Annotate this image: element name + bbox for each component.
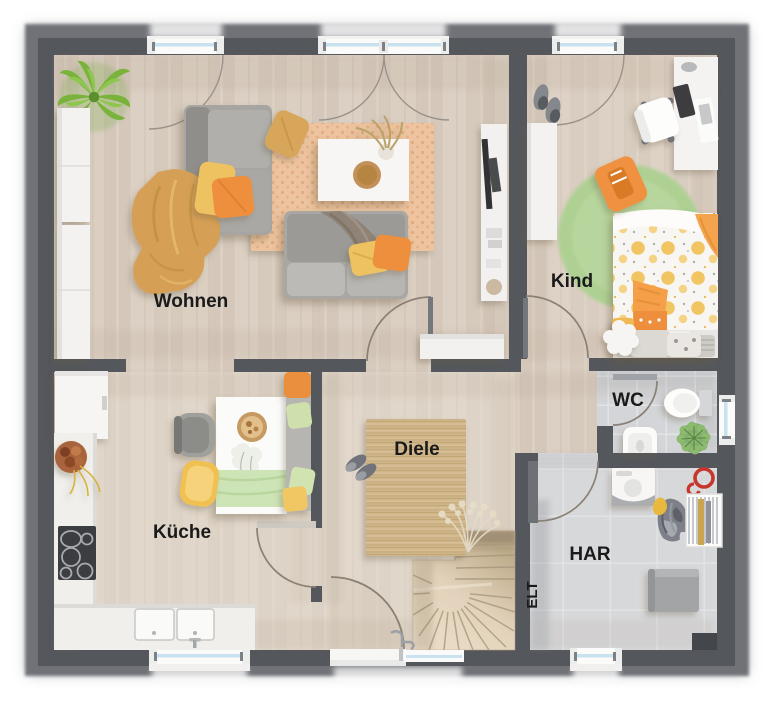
svg-text:ELT: ELT [524, 581, 541, 608]
svg-text:HAR: HAR [569, 544, 610, 565]
svg-text:Diele: Diele [394, 439, 439, 460]
svg-text:Kind: Kind [551, 271, 593, 292]
svg-text:Küche: Küche [153, 522, 211, 543]
svg-text:Wohnen: Wohnen [154, 291, 229, 312]
svg-text:WC: WC [612, 390, 644, 411]
